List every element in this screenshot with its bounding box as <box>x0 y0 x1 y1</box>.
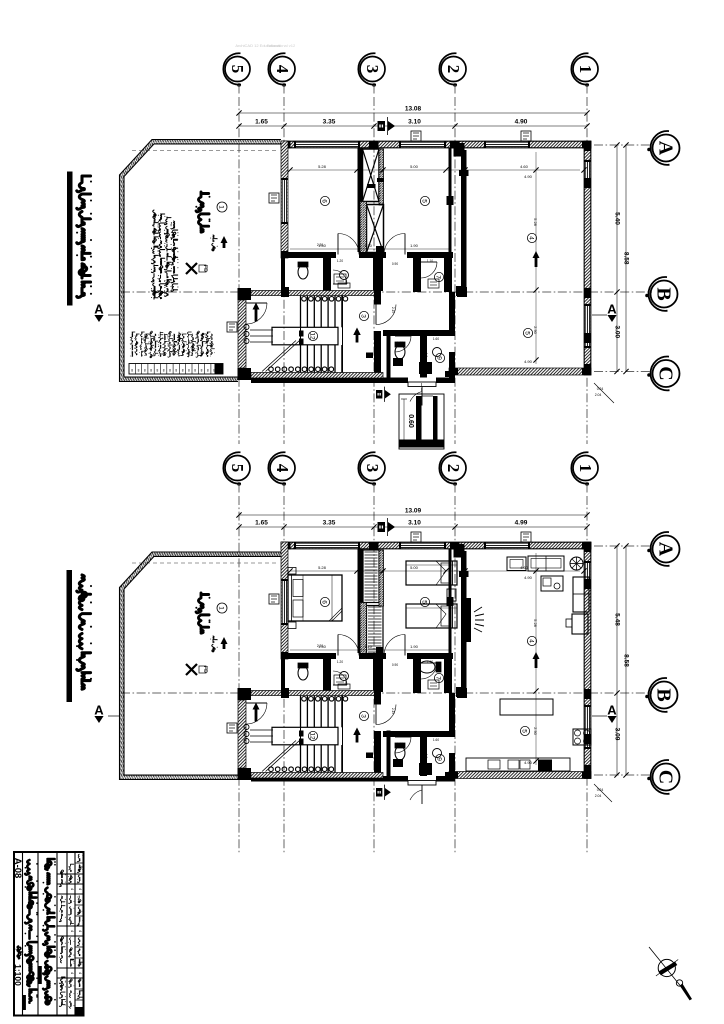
svg-text:12: 12 <box>309 732 316 740</box>
svg-text:3.35: 3.35 <box>323 119 336 126</box>
svg-text:5.00: 5.00 <box>410 565 419 570</box>
svg-text:3.35: 3.35 <box>323 520 336 527</box>
svg-text:A: A <box>607 703 617 718</box>
svg-text:5.48: 5.48 <box>614 613 621 626</box>
svg-text:1: 1 <box>576 65 595 74</box>
svg-text:1.60: 1.60 <box>433 337 439 341</box>
svg-text:8: 8 <box>131 369 133 373</box>
svg-text:8: 8 <box>182 369 184 373</box>
svg-text:1.2: 1.2 <box>424 754 428 759</box>
svg-text:9: 9 <box>436 356 443 360</box>
svg-text:0.90: 0.90 <box>392 262 398 266</box>
svg-text:1.2: 1.2 <box>424 353 428 358</box>
svg-text:1.90: 1.90 <box>410 644 419 649</box>
svg-text:3.10: 3.10 <box>408 520 421 527</box>
svg-text:8: 8 <box>144 369 146 373</box>
svg-text:1.10: 1.10 <box>427 259 433 263</box>
svg-text:3.09: 3.09 <box>614 728 621 741</box>
svg-text:1.35: 1.35 <box>397 742 403 746</box>
svg-text:1: 1 <box>218 606 225 610</box>
svg-text:6: 6 <box>321 199 328 203</box>
svg-text:2.15: 2.15 <box>391 708 395 714</box>
svg-text:6: 6 <box>321 600 328 604</box>
svg-text:4.90: 4.90 <box>524 359 533 364</box>
svg-text:5.28: 5.28 <box>318 164 327 169</box>
svg-text:0.24: 0.24 <box>597 788 604 792</box>
svg-text:4.90: 4.90 <box>524 174 533 179</box>
svg-text:1.20: 1.20 <box>337 660 343 664</box>
svg-text:8: 8 <box>138 369 140 373</box>
svg-text:1.65: 1.65 <box>255 119 268 126</box>
svg-text:12: 12 <box>309 332 316 340</box>
svg-text:4: 4 <box>528 236 535 240</box>
svg-text:0.24: 0.24 <box>597 387 604 391</box>
svg-text:B: B <box>653 287 675 300</box>
svg-text:4.60: 4.60 <box>520 164 529 169</box>
svg-text:4.90: 4.90 <box>515 119 528 126</box>
svg-text:3: 3 <box>363 65 382 74</box>
svg-text:1.90: 1.90 <box>410 243 419 248</box>
svg-text:2.04: 2.04 <box>595 393 602 397</box>
svg-text:4.90: 4.90 <box>524 575 533 580</box>
svg-text:FD: FD <box>202 265 208 272</box>
svg-text:2.90: 2.90 <box>533 326 538 335</box>
svg-text:1.20: 1.20 <box>337 259 343 263</box>
svg-text:4: 4 <box>273 65 292 74</box>
svg-text:1: 1 <box>218 205 225 209</box>
svg-text:8: 8 <box>207 369 209 373</box>
svg-text:2: 2 <box>444 464 463 473</box>
svg-text:8.58: 8.58 <box>623 252 630 265</box>
svg-text:5.28: 5.28 <box>533 218 538 227</box>
svg-text:5.00: 5.00 <box>410 164 419 169</box>
svg-text:4: 4 <box>528 639 535 643</box>
svg-text:1.10: 1.10 <box>364 644 373 649</box>
svg-text:5: 5 <box>228 464 247 473</box>
svg-text:1.35: 1.35 <box>397 341 403 345</box>
svg-text:8.58: 8.58 <box>623 654 630 667</box>
svg-text:1:100: 1:100 <box>13 964 23 986</box>
svg-text:0.90: 0.90 <box>392 663 398 667</box>
svg-text:C: C <box>655 770 677 784</box>
svg-text:3: 3 <box>360 314 367 318</box>
svg-text:2.15: 2.15 <box>391 307 395 313</box>
svg-text:4.60: 4.60 <box>520 565 529 570</box>
svg-text:8: 8 <box>188 369 190 373</box>
svg-text:2: 2 <box>444 65 463 74</box>
svg-text:5.28: 5.28 <box>318 565 327 570</box>
svg-text:A: A <box>607 302 617 317</box>
svg-text:5: 5 <box>421 199 428 203</box>
svg-text:8: 8 <box>163 369 165 373</box>
svg-text:Educational v12: Educational v12 <box>267 43 296 48</box>
svg-text:1.65: 1.65 <box>255 520 268 527</box>
svg-text:4.90: 4.90 <box>524 760 533 765</box>
svg-text:B: B <box>653 688 675 701</box>
svg-text:C: C <box>655 366 677 380</box>
svg-text:4: 4 <box>273 464 292 473</box>
svg-text:1: 1 <box>576 464 595 473</box>
svg-text:7: 7 <box>435 275 442 279</box>
svg-text:13.09: 13.09 <box>405 508 422 515</box>
svg-text:A: A <box>655 542 677 557</box>
svg-text:2.30: 2.30 <box>317 243 323 247</box>
svg-text:4.99: 4.99 <box>515 520 528 527</box>
svg-text:5: 5 <box>521 729 528 733</box>
svg-text:5.40: 5.40 <box>614 212 621 225</box>
svg-text:5: 5 <box>524 331 531 335</box>
svg-text:A: A <box>94 703 104 718</box>
svg-text:13.08: 13.08 <box>405 106 422 113</box>
svg-text:2.90: 2.90 <box>533 727 538 736</box>
svg-text:A-08: A-08 <box>12 858 23 879</box>
svg-text:2.04: 2.04 <box>595 794 602 798</box>
svg-text:8: 8 <box>175 369 177 373</box>
svg-text:3.00: 3.00 <box>614 325 621 338</box>
svg-text:9: 9 <box>436 757 443 761</box>
svg-text:0.60: 0.60 <box>407 414 414 428</box>
svg-text:8: 8 <box>169 369 171 373</box>
svg-text:8: 8 <box>150 369 152 373</box>
svg-text:8: 8 <box>194 369 196 373</box>
svg-text:8: 8 <box>157 369 159 373</box>
svg-text:A: A <box>655 141 677 156</box>
svg-text:3: 3 <box>360 714 367 718</box>
svg-text:3: 3 <box>363 464 382 473</box>
svg-text:5: 5 <box>228 65 247 74</box>
svg-text:A: A <box>94 302 104 317</box>
svg-text:7: 7 <box>435 676 442 680</box>
svg-text:5.28: 5.28 <box>533 619 538 628</box>
svg-text:3.10: 3.10 <box>408 119 421 126</box>
svg-text:FD: FD <box>202 666 208 673</box>
svg-text:8: 8 <box>201 369 203 373</box>
svg-text:2.30: 2.30 <box>317 644 323 648</box>
svg-text:1.10: 1.10 <box>364 243 373 248</box>
svg-text:1.60: 1.60 <box>433 738 439 742</box>
